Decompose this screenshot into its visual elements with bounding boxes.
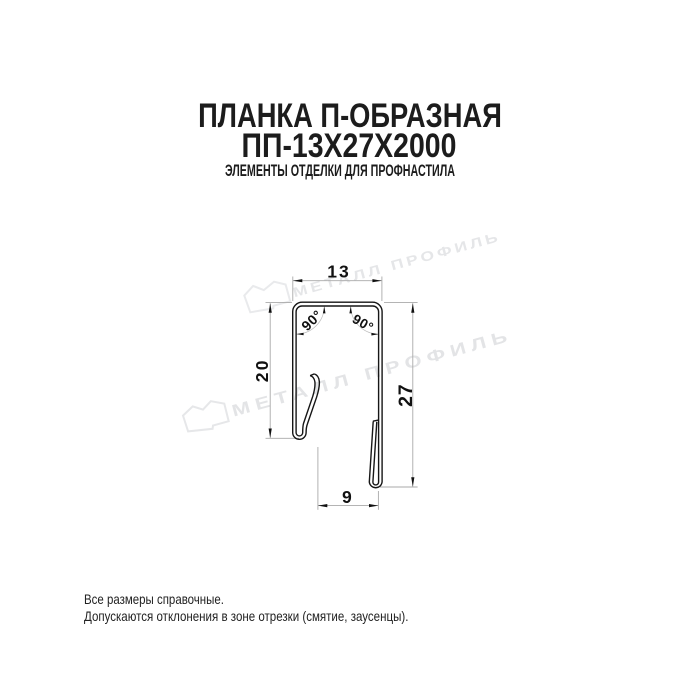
svg-text:13: 13	[327, 262, 350, 282]
svg-text:20: 20	[252, 358, 272, 382]
svg-text:90°: 90°	[350, 311, 376, 335]
svg-text:27: 27	[395, 384, 417, 407]
svg-text:МЕТАЛЛ ПРОФИЛЬ: МЕТАЛЛ ПРОФИЛЬ	[291, 230, 502, 301]
svg-text:90°: 90°	[298, 307, 325, 334]
svg-text:МЕТАЛЛ ПРОФИЛЬ: МЕТАЛЛ ПРОФИЛЬ	[230, 326, 515, 421]
svg-text:9: 9	[342, 487, 352, 507]
